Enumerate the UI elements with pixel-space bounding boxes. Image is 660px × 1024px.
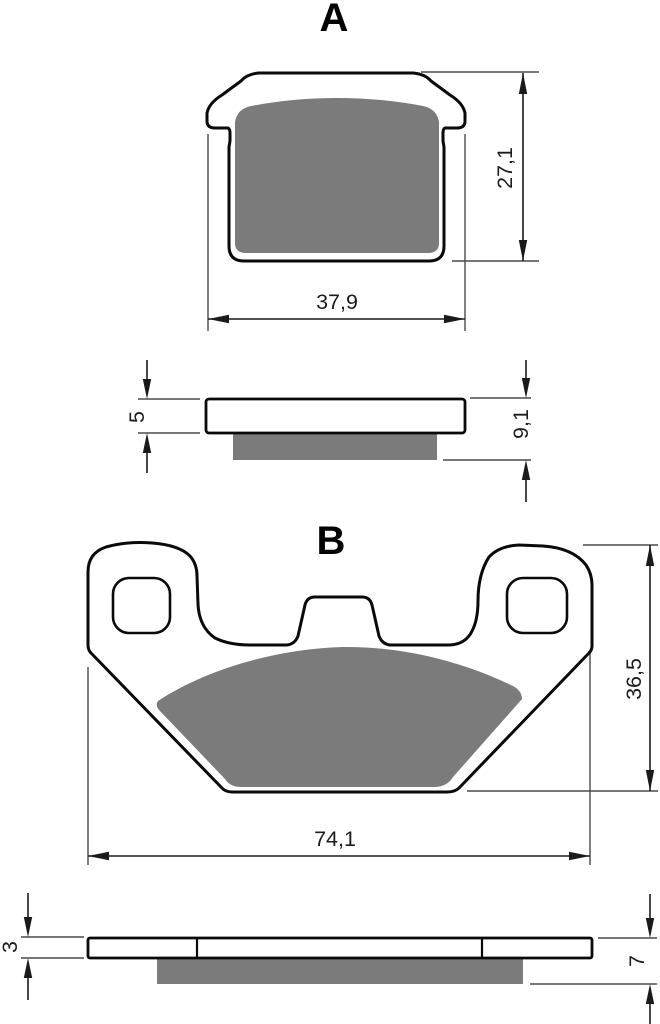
dimension-b-width: 74,1 (88, 827, 590, 860)
technical-drawing: A 37,9 27,1 (0, 0, 660, 1024)
arrowhead-bottom (646, 770, 654, 791)
dim-a-width-value: 37,9 (316, 290, 358, 314)
dim-a-total-value: 9,1 (509, 409, 533, 439)
arrowhead-bottom (519, 240, 527, 261)
arrowhead-up (522, 460, 530, 480)
brake-pad-dimension-drawing: A 37,9 27,1 (0, 0, 660, 1024)
arrowhead-down (522, 378, 530, 398)
arrowhead-left (88, 852, 109, 860)
dim-a-backing-value: 5 (125, 411, 149, 423)
dim-b-backing-value: 3 (0, 941, 22, 953)
pad-b-mounting-hole-left (113, 578, 170, 633)
arrowhead-right (569, 852, 590, 860)
pad-a-friction-front (235, 98, 439, 253)
dimension-a-backing: 5 (125, 360, 200, 473)
dim-b-width-value: 74,1 (314, 827, 356, 851)
arrowhead-up (24, 958, 32, 978)
arrowhead-down (646, 918, 654, 938)
pad-a-backing-plate-side (206, 399, 465, 433)
arrowhead-left (208, 315, 229, 323)
pad-b-backing-plate-side (88, 938, 592, 958)
dim-b-height-value: 36,5 (622, 658, 646, 700)
pad-b-side-view (88, 938, 592, 984)
dim-a-height-value: 27,1 (493, 147, 517, 189)
pad-a-side-view (206, 399, 465, 460)
dimension-a-height: 27,1 (493, 73, 527, 261)
arrowhead-down (24, 917, 32, 937)
section-a: A 37,9 27,1 (125, 0, 539, 502)
arrowhead-up (646, 984, 654, 1004)
section-b-label: B (317, 519, 346, 563)
arrowhead-up (143, 433, 151, 453)
arrowhead-down (143, 379, 151, 399)
pad-b-friction-side (157, 958, 523, 984)
section-b: B 36,5 74,1 (0, 519, 658, 1024)
pad-b-mounting-hole-right (507, 578, 567, 633)
dim-b-total-value: 7 (625, 955, 649, 967)
arrowhead-right (444, 315, 465, 323)
pad-a-friction-side (233, 433, 437, 460)
dimension-b-height: 36,5 (622, 545, 654, 791)
arrowhead-top (646, 545, 654, 566)
arrowhead-top (519, 73, 527, 94)
dimension-b-backing: 3 (0, 893, 84, 1000)
section-a-label: A (320, 0, 349, 40)
dimension-a-width: 37,9 (208, 290, 465, 323)
